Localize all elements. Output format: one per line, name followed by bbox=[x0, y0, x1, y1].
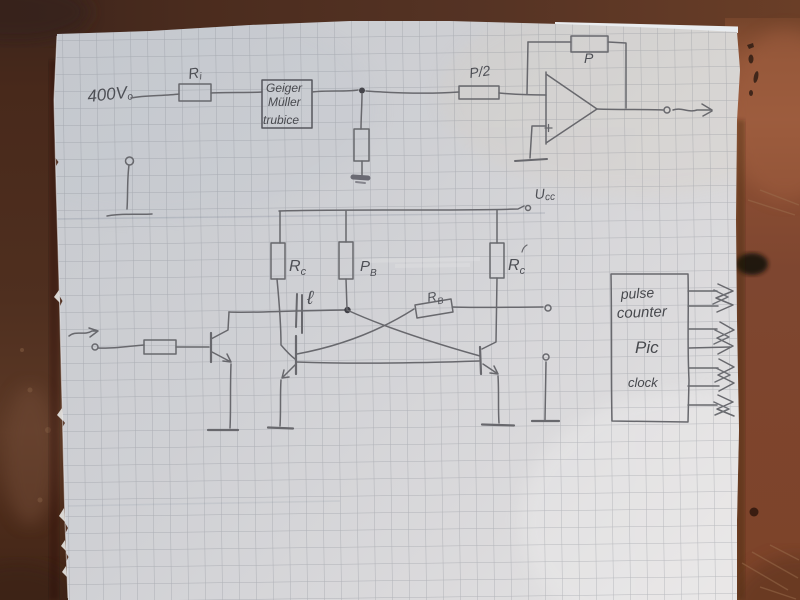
svg-text:pulse: pulse bbox=[619, 284, 654, 302]
svg-text:Pic: Pic bbox=[635, 338, 659, 357]
svg-text:P: P bbox=[584, 50, 594, 66]
svg-text:Müller: Müller bbox=[268, 95, 302, 109]
svg-text:trubice: trubice bbox=[263, 113, 299, 127]
svg-text:counter: counter bbox=[617, 303, 669, 322]
svg-text:ℓ: ℓ bbox=[306, 288, 314, 309]
svg-text:P/2: P/2 bbox=[468, 62, 491, 81]
svg-text:clock: clock bbox=[628, 375, 659, 390]
svg-text:Geiger: Geiger bbox=[266, 81, 303, 95]
